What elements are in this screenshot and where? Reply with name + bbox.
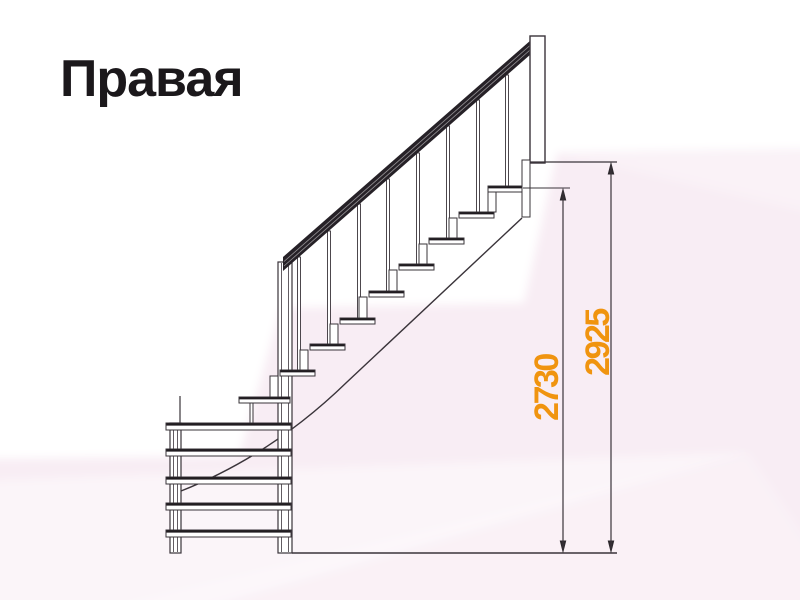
baluster — [477, 100, 480, 212]
riser-support — [419, 244, 427, 264]
dim-label-2925: 2925 — [579, 309, 617, 376]
riser-support — [300, 350, 308, 370]
riser-support — [449, 218, 457, 238]
staircase-drawing-page: 27302925 Правая — [0, 0, 800, 600]
riser-support — [270, 376, 278, 397]
winder-tread-support — [250, 403, 253, 423]
dim-label-2730: 2730 — [528, 354, 566, 421]
page-title: Правая — [60, 53, 243, 105]
riser-support — [488, 192, 496, 212]
baluster — [506, 75, 509, 186]
riser-support — [389, 270, 397, 291]
riser-support — [330, 324, 338, 344]
top-post — [530, 36, 545, 163]
riser-support — [359, 297, 367, 318]
